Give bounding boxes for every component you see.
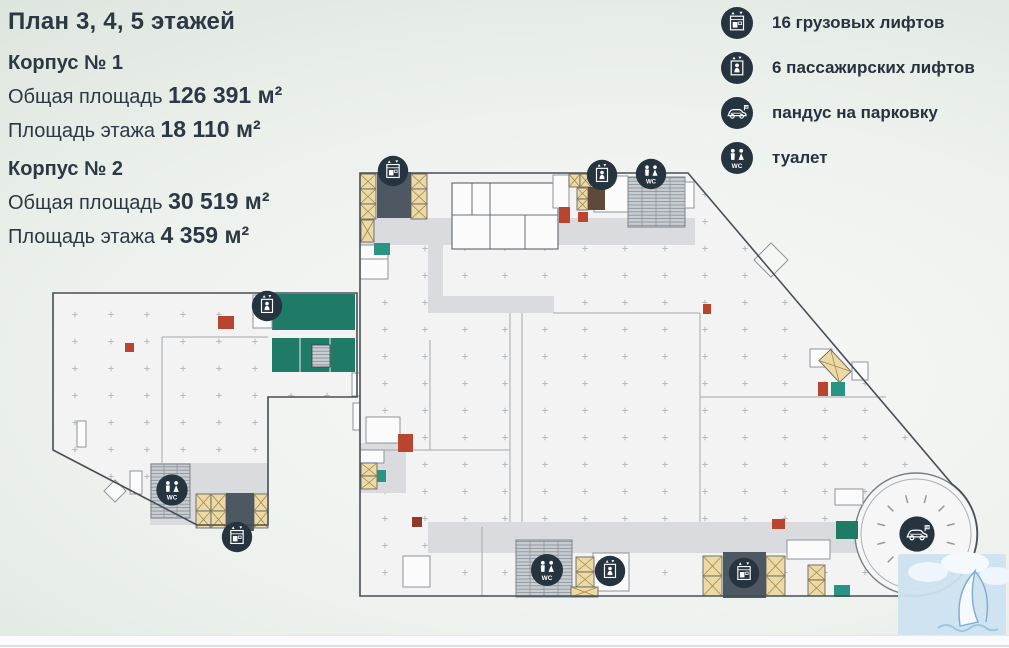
toilet-icon [531,554,563,586]
toilet-icon [636,159,666,189]
freight-elevator-icon [222,522,252,552]
parking-ramp-icon [719,95,755,131]
building-2-total-area: Общая площадь 30 519 м² [8,188,428,215]
passenger-elevator-icon [595,556,625,586]
building-2-name: Корпус № 2 [8,158,428,181]
total-area-label: Общая площадь [8,86,163,108]
passenger-elevator-icon [719,50,755,86]
building-1-name: Корпус № 1 [8,52,428,75]
passenger-elevator-icon [587,160,617,190]
freight-elevator-icon [729,558,759,588]
legend-label: 6 пассажирских лифтов [772,58,975,78]
total-area-value: 126 391 м² [168,82,282,108]
building-1 [360,156,980,598]
floor-area-value: 4 359 м² [161,222,250,248]
legend-label: пандус на парковку [772,103,938,123]
building-2-floor-area: Площадь этажа 4 359 м² [8,222,428,249]
legend-label: 16 грузовых лифтов [772,13,945,33]
building-1-info: Корпус № 1 Общая площадь 126 391 м² Площ… [8,52,428,143]
legend-row-toilet: туалет [719,140,1009,176]
floor-area-value: 18 110 м² [161,116,261,142]
floor-plan-page: WC P [0,0,1009,648]
total-area-label: Общая площадь [8,192,163,214]
toilet-icon [156,474,187,505]
watermark [898,552,1009,636]
legend-label: туалет [772,148,828,168]
passenger-elevator-icon [252,291,282,321]
building-1-total-area: Общая площадь 126 391 м² [8,82,428,109]
legend-row-ramp: пандус на парковку [719,95,1009,131]
legend: 16 грузовых лифтов 6 пассажирских лифтов… [719,5,1009,185]
floor-area-label: Площадь этажа [8,226,155,248]
total-area-value: 30 519 м² [168,188,269,214]
parking-ramp-icon [899,516,934,551]
building-2-info: Корпус № 2 Общая площадь 30 519 м² Площа… [8,158,428,249]
building-1-floor-area: Площадь этажа 18 110 м² [8,116,428,143]
legend-row-passenger: 6 пассажирских лифтов [719,50,1009,86]
building-2 [53,291,370,552]
legend-row-freight: 16 грузовых лифтов [719,5,1009,41]
page-title: План 3, 4, 5 этажей [8,8,408,36]
bottom-strip [0,635,1009,648]
toilet-icon [719,140,755,176]
floor-area-label: Площадь этажа [8,120,155,142]
freight-elevator-icon [719,5,755,41]
